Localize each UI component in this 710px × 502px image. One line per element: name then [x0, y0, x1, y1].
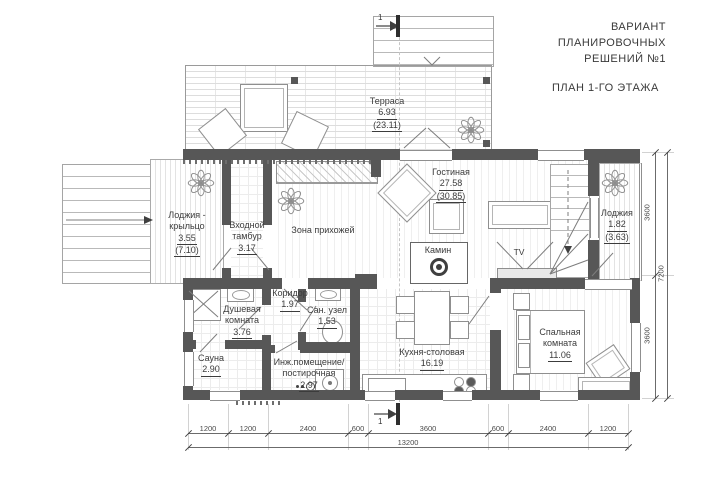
window	[585, 279, 632, 290]
dimension-total: 7200	[657, 259, 666, 289]
dimension-value: 1200	[230, 424, 266, 433]
window	[443, 391, 472, 401]
window	[540, 391, 578, 401]
dimension-value: 3600	[410, 424, 446, 433]
window	[365, 391, 395, 401]
dimension-value: 600	[340, 424, 376, 433]
section-marker-label: 1	[378, 13, 382, 22]
dimension-line-bottom	[188, 433, 628, 434]
dimension-line-right-total	[667, 152, 668, 398]
room-label-hallway: Зона прихожей	[283, 225, 363, 236]
dimension-value: 3600	[643, 197, 652, 227]
dimension-total: 13200	[390, 438, 426, 447]
room-label-san-uzel: Сан. узел 1.53	[303, 305, 351, 329]
room-label-vestibule: Входной тамбур 3.17	[225, 220, 269, 255]
tv-label: TV	[505, 247, 533, 258]
room-label-sauna: Сауна 2.90	[190, 353, 232, 377]
room-label-shower: Душевая комната 3.76	[214, 304, 270, 339]
plan-title: ПЛАН 1-ГО ЭТАЖА	[552, 81, 666, 97]
fireplace-label: Камин	[412, 245, 464, 256]
section-marker-label: 1	[378, 417, 382, 426]
window	[631, 323, 641, 372]
room-label-loggia-porch: Лоджия - крыльцо 3.55 (7.10)	[156, 210, 218, 257]
room-label-utility: Инж.помещение/ постирочная 2.97	[268, 357, 350, 392]
dimension-value: 1200	[190, 424, 226, 433]
room-label-bedroom: Спальная комната 11.06	[528, 327, 592, 362]
window	[184, 300, 194, 332]
title-line: ВАРИАНТ	[552, 20, 666, 36]
room-label-kitchen: Кухня-столовая 16.19	[387, 347, 477, 371]
floor-plan: ВАРИАНТ ПЛАНИРОВОЧНЫХ РЕШЕНИЙ №1 ПЛАН 1-…	[0, 0, 710, 502]
dimension-value: 3600	[643, 320, 652, 350]
room-label-terrace: Терраса 6.93 (23.11)	[352, 96, 422, 132]
window	[400, 150, 452, 161]
window	[538, 150, 584, 161]
room-label-living: Гостиная 27.58 (30.85)	[418, 167, 484, 203]
dimension-value: 1200	[590, 424, 626, 433]
window	[210, 391, 240, 401]
title-line: РЕШЕНИЙ №1	[552, 52, 666, 68]
dimension-value: 2400	[530, 424, 566, 433]
section-marker-bar	[396, 403, 400, 425]
title-line: ПЛАНИРОВОЧНЫХ	[552, 36, 666, 52]
room-label-loggia: Лоджия 1.82 (3.63)	[592, 208, 642, 244]
section-marker-bar	[396, 15, 400, 37]
dimension-value: 600	[480, 424, 516, 433]
dimension-line-bottom-total	[188, 447, 628, 448]
title-block: ВАРИАНТ ПЛАНИРОВОЧНЫХ РЕШЕНИЙ №1 ПЛАН 1-…	[552, 20, 666, 97]
dimension-value: 2400	[290, 424, 326, 433]
